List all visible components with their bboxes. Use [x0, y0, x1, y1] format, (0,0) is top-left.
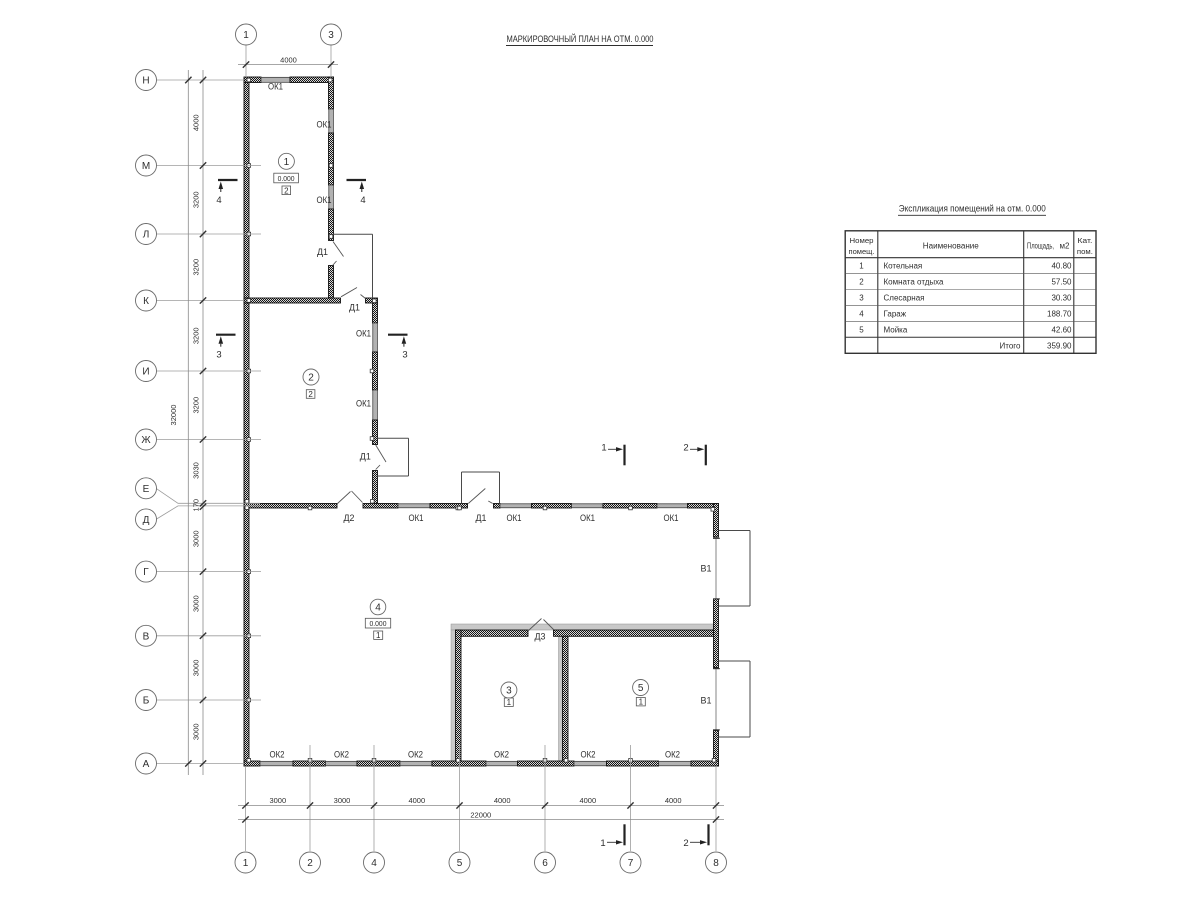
svg-text:3030: 3030 — [191, 462, 200, 479]
svg-text:4: 4 — [216, 195, 221, 206]
svg-text:ОК2: ОК2 — [334, 750, 349, 760]
svg-text:4000: 4000 — [665, 796, 682, 805]
svg-text:4000: 4000 — [191, 114, 200, 131]
svg-text:5: 5 — [457, 858, 463, 869]
svg-text:2: 2 — [308, 390, 313, 399]
svg-text:4000: 4000 — [494, 796, 511, 805]
svg-text:3000: 3000 — [191, 723, 200, 740]
svg-text:4000: 4000 — [408, 796, 425, 805]
svg-text:5: 5 — [638, 683, 644, 694]
svg-text:Слесарная: Слесарная — [884, 294, 925, 303]
svg-text:40.80: 40.80 — [1051, 262, 1072, 271]
svg-text:3: 3 — [506, 686, 512, 697]
svg-text:3200: 3200 — [191, 259, 200, 276]
svg-text:ОК1: ОК1 — [580, 513, 595, 523]
svg-text:6: 6 — [542, 858, 548, 869]
svg-text:4: 4 — [859, 309, 864, 318]
svg-text:Наименование: Наименование — [923, 242, 980, 251]
svg-text:В1: В1 — [701, 696, 712, 706]
svg-text:3000: 3000 — [191, 530, 200, 547]
svg-text:2: 2 — [307, 858, 313, 869]
svg-text:Д1: Д1 — [360, 452, 371, 462]
svg-text:0.000: 0.000 — [278, 176, 295, 183]
svg-text:8: 8 — [713, 858, 719, 869]
svg-text:1: 1 — [243, 30, 249, 41]
svg-text:Д1: Д1 — [349, 303, 360, 313]
svg-text:МАРКИРОВОЧНЫЙ ПЛАН НА ОТМ. 0.0: МАРКИРОВОЧНЫЙ ПЛАН НА ОТМ. 0.000 — [507, 33, 654, 45]
svg-text:пом.: пом. — [1077, 247, 1093, 256]
svg-text:1: 1 — [601, 443, 606, 454]
svg-text:Кат.: Кат. — [1077, 236, 1092, 245]
svg-text:3000: 3000 — [191, 660, 200, 677]
svg-text:Итого: Итого — [1000, 341, 1022, 350]
svg-text:Котельная: Котельная — [884, 262, 923, 271]
svg-text:Л: Л — [143, 230, 150, 241]
svg-text:ОК1: ОК1 — [409, 513, 424, 523]
svg-text:ОК2: ОК2 — [665, 750, 680, 760]
svg-text:Площадь,: Площадь, — [1027, 242, 1054, 251]
svg-text:ОК1: ОК1 — [317, 195, 332, 205]
svg-text:2: 2 — [683, 838, 688, 849]
svg-text:Д1: Д1 — [476, 513, 487, 523]
svg-text:Номер: Номер — [850, 236, 874, 245]
svg-text:30.30: 30.30 — [1051, 294, 1072, 303]
svg-text:1: 1 — [507, 698, 512, 707]
svg-text:4: 4 — [360, 195, 365, 206]
svg-text:помещ.: помещ. — [849, 247, 875, 256]
svg-text:м2: м2 — [1060, 242, 1071, 251]
svg-text:32000: 32000 — [169, 405, 178, 426]
svg-text:1: 1 — [284, 157, 290, 168]
svg-text:Д2: Д2 — [344, 513, 355, 523]
svg-text:7: 7 — [628, 858, 634, 869]
svg-text:188.70: 188.70 — [1047, 309, 1072, 318]
svg-text:57.50: 57.50 — [1051, 278, 1072, 287]
svg-text:ОК2: ОК2 — [494, 750, 509, 760]
svg-text:ОК1: ОК1 — [356, 329, 371, 339]
svg-text:2: 2 — [859, 278, 864, 287]
svg-text:1: 1 — [859, 262, 864, 271]
svg-text:4: 4 — [375, 603, 381, 614]
svg-text:3200: 3200 — [191, 191, 200, 208]
svg-text:В: В — [143, 631, 150, 642]
svg-text:И: И — [142, 367, 149, 378]
svg-text:ОК2: ОК2 — [270, 750, 285, 760]
svg-text:3: 3 — [859, 294, 864, 303]
svg-text:0.000: 0.000 — [370, 621, 387, 628]
svg-text:Д3: Д3 — [535, 632, 546, 642]
svg-text:42.60: 42.60 — [1051, 325, 1072, 334]
svg-text:3: 3 — [216, 350, 221, 361]
svg-text:5: 5 — [859, 325, 864, 334]
svg-text:Г: Г — [143, 567, 149, 578]
svg-text:1: 1 — [376, 631, 381, 640]
svg-text:2: 2 — [308, 373, 314, 384]
svg-text:Д: Д — [143, 515, 150, 526]
svg-text:Н: Н — [142, 76, 149, 87]
svg-text:22000: 22000 — [470, 810, 491, 819]
svg-text:4000: 4000 — [579, 796, 596, 805]
svg-text:ОК2: ОК2 — [408, 750, 423, 760]
svg-text:ОК1: ОК1 — [356, 399, 371, 409]
svg-text:ОК1: ОК1 — [268, 82, 283, 92]
svg-text:359.90: 359.90 — [1047, 341, 1072, 350]
svg-text:Б: Б — [143, 696, 150, 707]
svg-text:4000: 4000 — [280, 56, 297, 65]
svg-text:3200: 3200 — [191, 397, 200, 414]
svg-text:3200: 3200 — [191, 327, 200, 344]
svg-text:Экспликация помещений на отм.: Экспликация помещений на отм. 0.000 — [899, 204, 1046, 214]
svg-text:2: 2 — [683, 443, 688, 454]
svg-text:ОК1: ОК1 — [664, 513, 679, 523]
svg-text:М: М — [142, 161, 150, 172]
svg-text:А: А — [143, 759, 150, 770]
svg-text:3: 3 — [402, 350, 407, 361]
svg-text:2: 2 — [284, 186, 289, 195]
svg-text:3000: 3000 — [191, 595, 200, 612]
svg-text:ОК1: ОК1 — [317, 120, 332, 130]
svg-text:К: К — [143, 296, 149, 307]
svg-text:1: 1 — [600, 838, 605, 849]
svg-text:3: 3 — [328, 30, 334, 41]
svg-text:Ж: Ж — [141, 435, 151, 446]
svg-text:1: 1 — [639, 698, 644, 707]
svg-text:ОК1: ОК1 — [507, 513, 522, 523]
svg-text:4: 4 — [371, 858, 377, 869]
svg-text:Комната отдыха: Комната отдыха — [884, 278, 945, 287]
svg-text:170: 170 — [191, 499, 200, 512]
svg-text:ОК2: ОК2 — [581, 750, 596, 760]
svg-text:Гараж: Гараж — [884, 309, 907, 318]
svg-text:3000: 3000 — [334, 796, 351, 805]
svg-text:3000: 3000 — [269, 796, 286, 805]
svg-text:В1: В1 — [701, 564, 712, 574]
svg-text:Е: Е — [143, 484, 150, 495]
svg-text:Д1: Д1 — [317, 247, 328, 257]
svg-text:1: 1 — [243, 858, 249, 869]
svg-text:Мойка: Мойка — [884, 325, 908, 334]
